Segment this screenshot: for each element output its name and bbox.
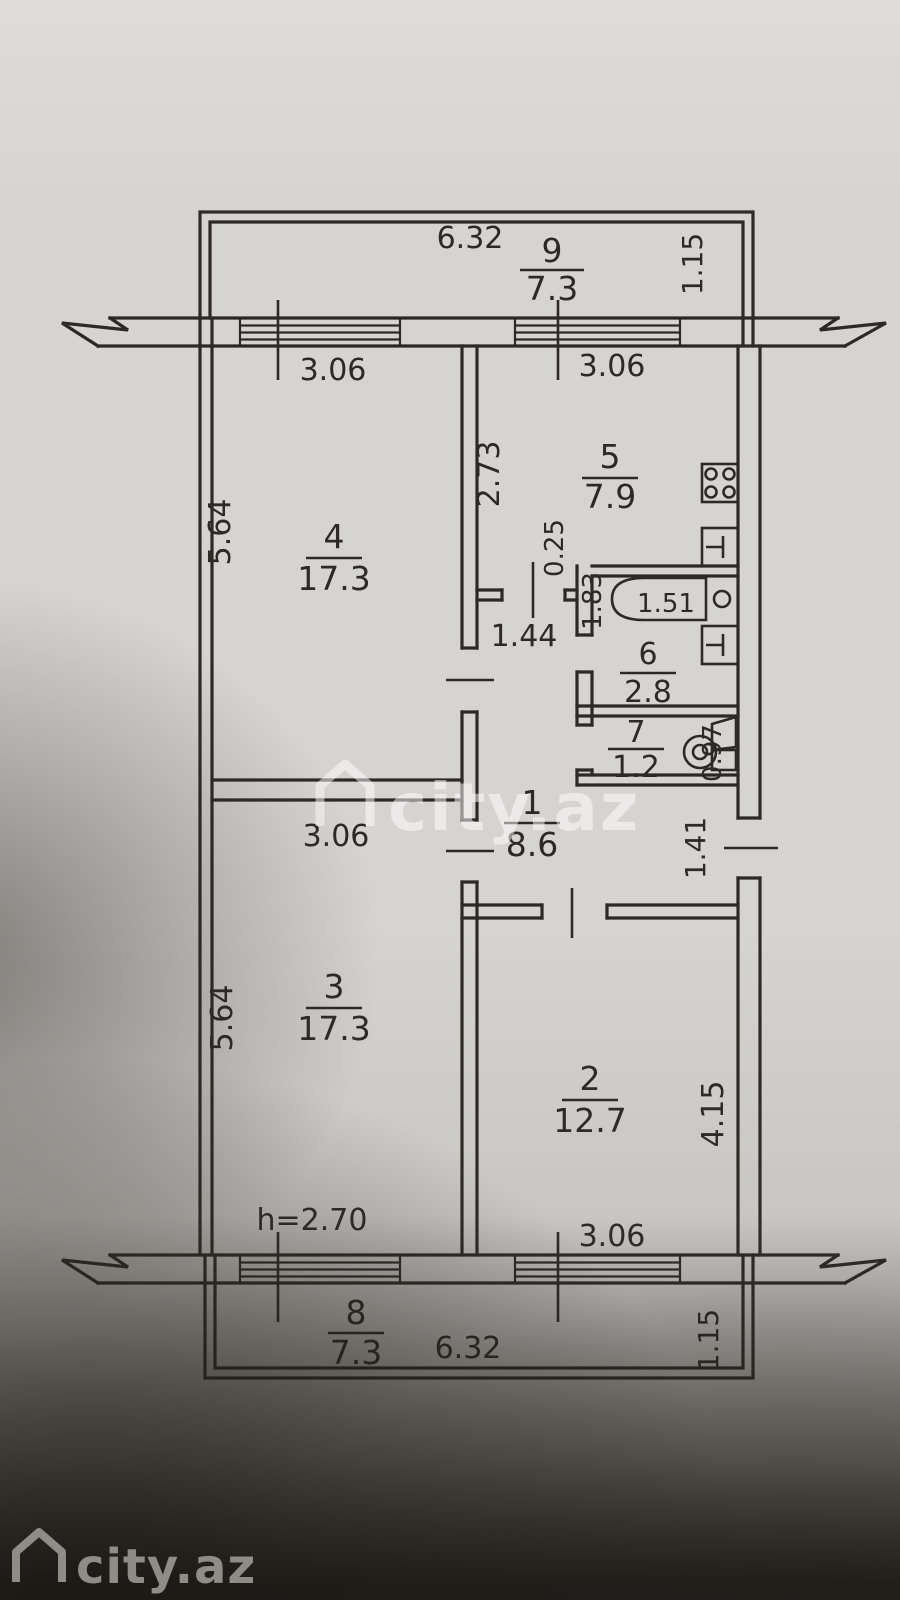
dim-bathtub-length: 1.51 (637, 589, 695, 619)
room6-number: 6 (638, 637, 657, 672)
wall-break-icon (62, 318, 128, 346)
floor-plan-drawing: 6.32 9 7.3 1.15 3.06 3.06 (0, 0, 900, 1600)
dim-bottom-balcony-width: 6.32 (435, 1331, 502, 1366)
dim-room4-depth: 5.64 (203, 499, 238, 566)
dim-wc-width: 0.97 (698, 724, 728, 782)
room3-area: 17.3 (297, 1009, 370, 1048)
dim-room3-depth: 5.64 (205, 985, 240, 1052)
wall-top: 3.06 3.06 (62, 300, 886, 388)
house-icon (320, 764, 370, 826)
window (240, 1255, 680, 1283)
room-4: 5.64 4 17.3 (203, 499, 371, 598)
room8-number: 8 (346, 1293, 367, 1332)
room5-number: 5 (600, 437, 621, 476)
room4-area: 17.3 (297, 559, 370, 598)
ceiling-height-note: h=2.70 (257, 1203, 368, 1238)
room9-area: 7.3 (526, 269, 578, 308)
dim-room2-window: 3.06 (579, 1219, 646, 1254)
room8-area: 7.3 (330, 1333, 382, 1372)
floor-plan-photo: 6.32 9 7.3 1.15 3.06 3.06 (0, 0, 900, 1600)
wall-break-icon (62, 1255, 128, 1283)
room5-area: 7.9 (584, 477, 636, 516)
room-2: 2 12.7 4.15 3.06 (553, 1059, 731, 1254)
room-3: 3.06 5.64 3 17.3 h=2.70 (205, 819, 371, 1238)
stove-icon (702, 464, 738, 502)
dim-kitchen-step: 0.25 (540, 519, 570, 577)
dim-kitchen-depth: 2.73 (472, 441, 507, 508)
room-5-kitchen: 2.73 5 7.9 0.25 (472, 437, 738, 577)
window (240, 318, 680, 346)
room4-number: 4 (324, 517, 345, 556)
dim-bathroom-width: 1.83 (578, 572, 608, 630)
kitchen-sink-icon (702, 528, 738, 566)
room6-area: 2.8 (624, 675, 672, 710)
dim-bottom-balcony-depth: 1.15 (692, 1309, 725, 1371)
watermark-center-text: city.az (388, 769, 640, 846)
dim-room4-window: 3.06 (300, 353, 367, 388)
room2-number: 2 (580, 1059, 601, 1098)
dim-entry-door-width: 1.41 (679, 817, 712, 879)
room-6-bathroom: 1.83 1.51 6 2.8 (578, 572, 738, 710)
room2-area: 12.7 (553, 1101, 626, 1140)
room3-number: 3 (324, 967, 345, 1006)
wall-break-icon (820, 1255, 886, 1283)
dim-kitchen-window: 3.06 (579, 349, 646, 384)
bath-sink-icon (702, 626, 738, 664)
wall-bottom (62, 1232, 886, 1322)
room9-number: 9 (542, 231, 563, 270)
dim-top-balcony-width: 6.32 (437, 221, 504, 256)
dim-top-balcony-depth: 1.15 (676, 233, 709, 295)
balcony-top: 6.32 9 7.3 1.15 (200, 212, 753, 318)
dim-room3-window: 3.06 (303, 819, 370, 854)
dim-corridor-width: 1.44 (491, 619, 558, 654)
dim-room2-depth: 4.15 (696, 1081, 731, 1148)
balcony-bottom: 8 7.3 6.32 1.15 (205, 1283, 753, 1378)
wall-break-icon (820, 318, 886, 346)
room7-number: 7 (626, 715, 645, 750)
